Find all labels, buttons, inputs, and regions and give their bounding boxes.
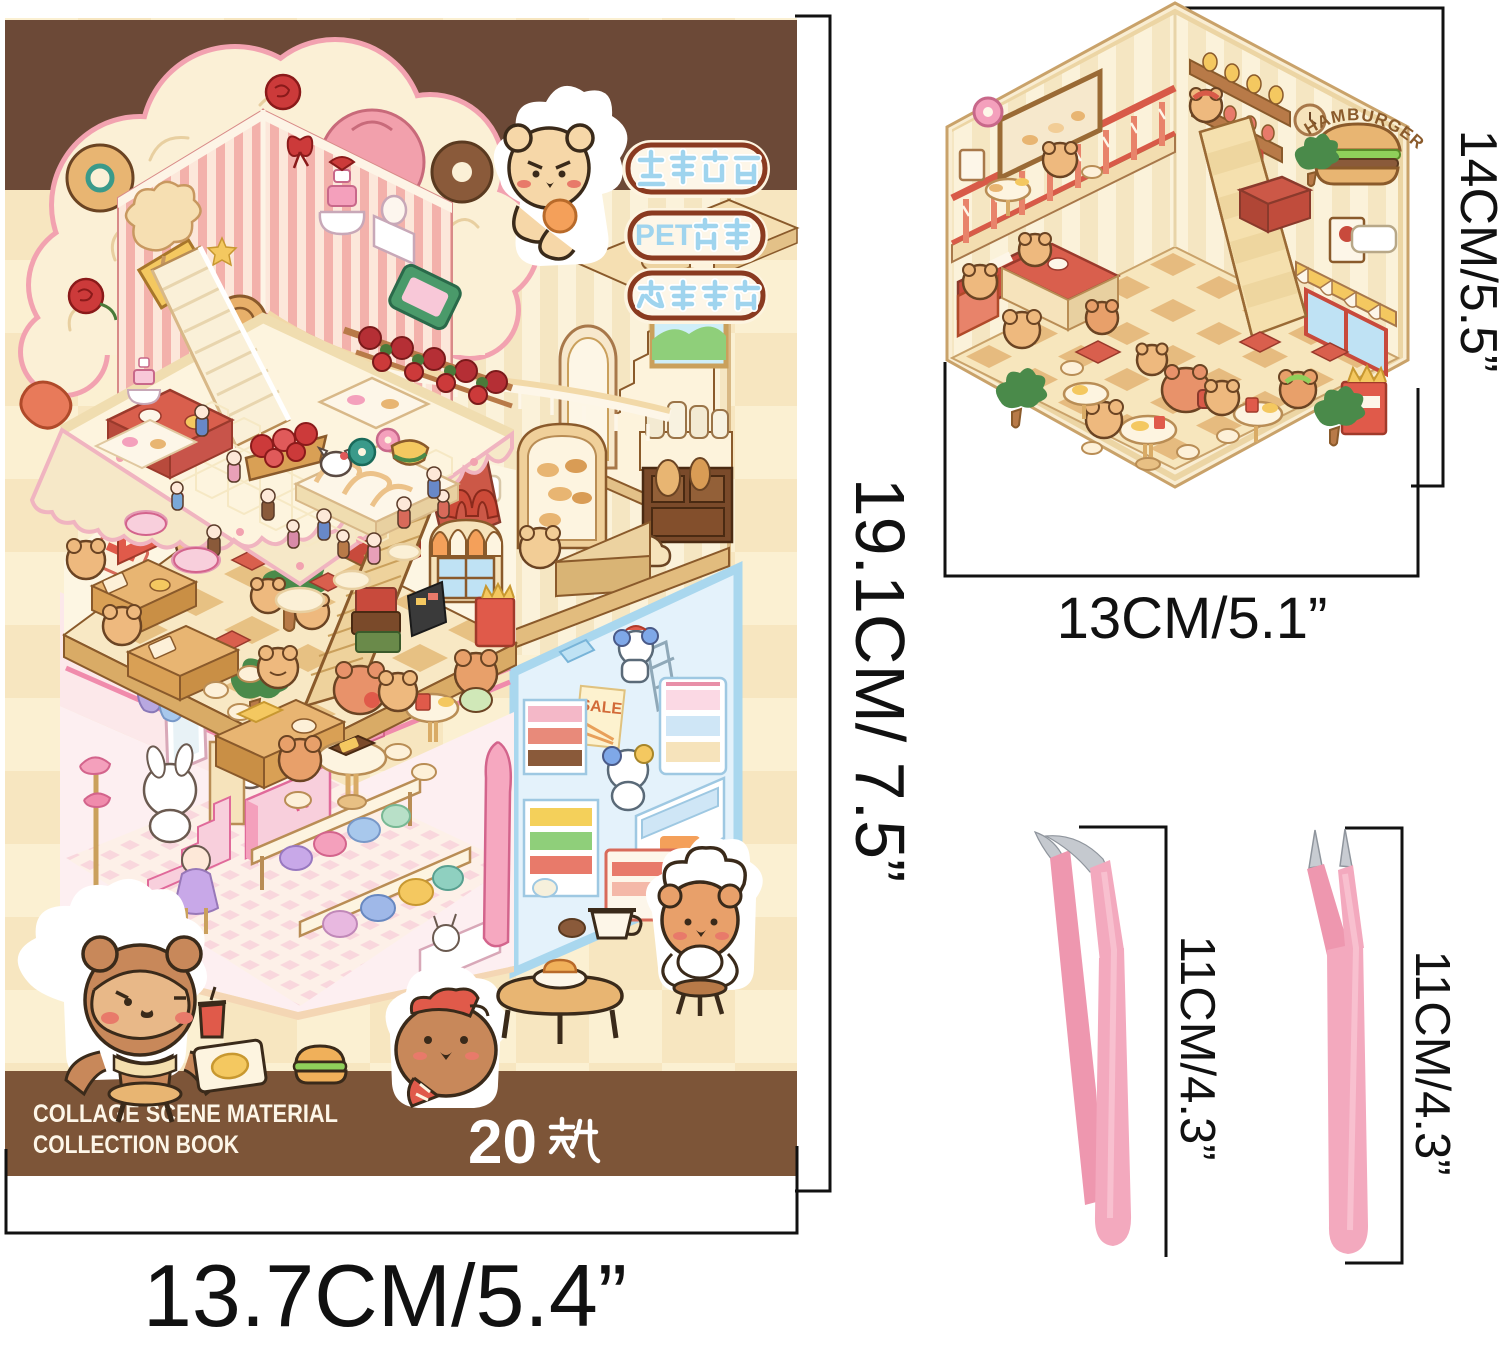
svg-text:13CM/5.1”: 13CM/5.1” [1057, 586, 1328, 651]
svg-text:11CM/4.3”: 11CM/4.3” [1170, 935, 1224, 1160]
svg-text:14CM/5.5”: 14CM/5.5” [1449, 130, 1500, 373]
svg-text:PET: PET [635, 219, 693, 252]
svg-text:COLLAGE SCENE MATERIAL: COLLAGE SCENE MATERIAL [33, 1100, 338, 1128]
svg-text:19.1CM/ 7.5”: 19.1CM/ 7.5” [841, 478, 919, 883]
svg-text:13.7CM/5.4”: 13.7CM/5.4” [143, 1246, 627, 1345]
svg-text:COLLECTION BOOK: COLLECTION BOOK [33, 1131, 239, 1159]
svg-text:11CM/4.3”: 11CM/4.3” [1405, 950, 1459, 1175]
svg-text:20: 20 [468, 1108, 537, 1177]
